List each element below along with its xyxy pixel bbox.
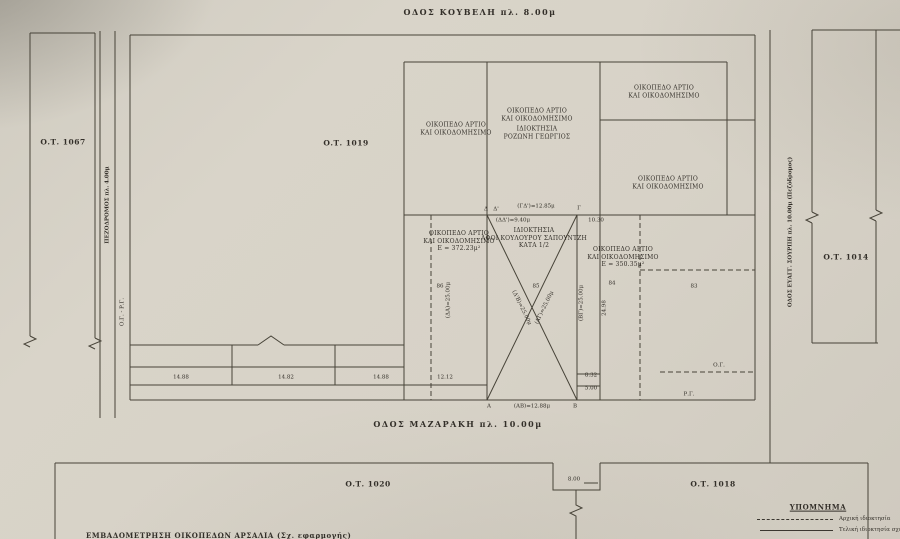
- parcel-number-83: 83: [691, 284, 698, 291]
- point-beta: Β: [573, 404, 577, 411]
- drawing-title: ΕΜΒΑΔΟΜΕΤΡΗΣΗ ΟΙΚΟΠΕΔΩΝ ΑΡΣΑΛΙΑ (Σχ. εφα…: [86, 532, 351, 539]
- block-label-ot1018: Ο.Τ. 1018: [690, 479, 735, 488]
- point-gamma: Γ: [577, 206, 581, 213]
- legend-item-label: Αρχική ιδιοκτησία: [839, 516, 891, 523]
- parcel-text-line: ΑΦΟΙ ΚΟΥΛΟΥΡΟΥ ΣΑΠΟΥΝΤΖΗ: [481, 234, 587, 242]
- legend-solid-line-sample: [760, 530, 833, 531]
- left-block-outline: [30, 33, 95, 338]
- dim-row-3: 14.88: [373, 375, 389, 382]
- parcel-text-line: ΚΑΙ ΟΙΚΟΔΟΜΗΣΙΜΟ: [628, 92, 699, 100]
- parcel-text-line: ΟΙΚΟΠΕΔΟ ΑΡΤΙΟ: [420, 122, 491, 130]
- block-label-ot1019: Ο.Τ. 1019: [323, 138, 368, 147]
- parcel-upper-mid-label: ΟΙΚΟΠΕΔΟ ΑΡΤΙΟ ΚΑΙ ΟΙΚΟΔΟΜΗΣΙΜΟ ΙΔΙΟΚΤΗΣ…: [501, 108, 572, 141]
- cadastral-plan-scan: ΟΔΟΣ ΚΟΥΒΕΛΗ πλ. 8.00μ ΟΔΟΣ ΜΑΖΑΡΑΚΗ πλ.…: [0, 0, 900, 539]
- dim-ab: (ΑΒ)=12.88μ: [514, 404, 550, 411]
- break-zigzag-icon: [24, 336, 101, 349]
- dim-1030: 10.30: [588, 218, 604, 225]
- street-label-mazaraki: ΟΔΟΣ ΜΑΖΑΡΑΚΗ πλ. 10.00μ: [373, 419, 542, 429]
- block-label-ot1014: Ο.Τ. 1014: [823, 252, 868, 261]
- point-delta-prime: Δ': [493, 207, 498, 214]
- dim-row-1: 14.88: [173, 375, 189, 382]
- street-label-sourpi: ΟΔΟΣ ΕΥΑΓΓ. ΣΟΥΡΠΗ πλ. 10.00μ (Πεζόδρομο…: [788, 157, 795, 307]
- dim-notch-800: 8.00: [568, 477, 580, 484]
- dim-gd: (ΓΔ')=12.85μ: [517, 204, 555, 211]
- point-alpha: Α: [487, 404, 491, 411]
- parcel-lower-mid-label: ΙΔΙΟΚΤΗΣΙΑ ΑΦΟΙ ΚΟΥΛΟΥΡΟΥ ΣΑΠΟΥΝΤΖΗ ΚΑΤΑ…: [481, 227, 587, 250]
- parcel-text-line: ΚΑΙ ΟΙΚΟΔΟΜΗΣΙΜΟ: [587, 253, 658, 261]
- parcel-mid-right-label: ΟΙΚΟΠΕΔΟ ΑΡΤΙΟ ΚΑΙ ΟΙΚΟΔΟΜΗΣΙΜΟ: [632, 176, 703, 191]
- line-mark-og-rg: Ο.Γ. - Ρ.Γ.: [120, 298, 127, 326]
- plan-linework: [0, 0, 900, 539]
- parcel-text-line: ΚΑΙ ΟΙΚΟΔΟΜΗΣΙΜΟ: [501, 115, 572, 123]
- parcel-number-85: 85: [533, 284, 540, 291]
- parcel-number-86: 86: [437, 284, 444, 291]
- block-label-ot1020: Ο.Τ. 1020: [345, 479, 390, 488]
- dim-row-4: 12.12: [437, 375, 453, 382]
- point-delta: Δ: [484, 207, 488, 214]
- parcel-number-84: 84: [609, 281, 616, 288]
- parcel-area-value: Ε = 350.35μ²: [587, 261, 658, 269]
- right-block-outline: [812, 30, 900, 343]
- bottom-blocks-line: [55, 463, 868, 539]
- parcel-upper-right-label: ΟΙΚΟΠΕΔΟ ΑΡΤΙΟ ΚΑΙ ΟΙΚΟΔΟΜΗΣΙΜΟ: [628, 85, 699, 100]
- parcel-text-line: ΙΔΙΟΚΤΗΣΙΑ: [501, 126, 572, 134]
- legend-item-label: Τελική ιδιοκτησία σχεδίου πόλεως: [839, 527, 900, 534]
- dim-2498: 24.98: [602, 300, 609, 316]
- block-label-ot1067: Ο.Τ. 1067: [40, 137, 85, 146]
- mark-rg: Ρ.Γ.: [683, 392, 694, 399]
- legend-title: ΥΠΟΜΝΗΜΑ: [790, 504, 846, 513]
- parcel-text-line: ΟΙΚΟΠΕΔΟ ΑΡΤΙΟ: [628, 85, 699, 93]
- parcel-text-line: ΚΑΤΑ 1/2: [481, 242, 587, 250]
- parcel-text-line: ΙΔΙΟΚΤΗΣΙΑ: [481, 227, 587, 235]
- parcel-text-line: ΟΙΚΟΠΕΔΟ ΑΡΤΙΟ: [501, 108, 572, 116]
- dim-dd: (ΔΔ')=9.40μ: [496, 218, 530, 225]
- parcel-upper-left-label: ΟΙΚΟΠΕΔΟ ΑΡΤΙΟ ΚΑΙ ΟΙΚΟΔΟΜΗΣΙΜΟ: [420, 122, 491, 137]
- street-label-pezodromos: ΠΕΖΟΔΡΟΜΟΣ πλ. 4.00μ: [105, 166, 112, 243]
- parcel-lower-right-label: ΟΙΚΟΠΕΔΟ ΑΡΤΙΟ ΚΑΙ ΟΙΚΟΔΟΜΗΣΙΜΟ Ε = 350.…: [587, 246, 658, 269]
- parcel-text-line: ΚΑΙ ΟΙΚΟΔΟΜΗΣΙΜΟ: [632, 183, 703, 191]
- dim-832: 8.32: [585, 373, 597, 380]
- parcel-text-line: ΟΙΚΟΠΕΔΟ ΑΡΤΙΟ: [632, 176, 703, 184]
- dim-500: 5.00: [585, 386, 597, 393]
- parcel-text-line: ΟΙΚΟΠΕΔΟ ΑΡΤΙΟ: [587, 246, 658, 254]
- mark-og: Ο.Γ.: [713, 363, 725, 370]
- break-zigzag-icon: [806, 210, 882, 223]
- dim-da-25: (ΔΑ)=25.00μ: [446, 282, 453, 318]
- dim-bg-25: (ΒΓ)=25.00μ: [579, 285, 586, 321]
- parcel-text-line: ΡΟΖΩΝΗ ΓΕΩΡΓΙΟΣ: [501, 133, 572, 141]
- parcel-text-line: ΚΑΙ ΟΙΚΟΔΟΜΗΣΙΜΟ: [420, 129, 491, 137]
- street-label-koubeli: ΟΔΟΣ ΚΟΥΒΕΛΗ πλ. 8.00μ: [403, 7, 556, 17]
- legend-dashed-line-sample: [757, 519, 833, 520]
- break-zigzag-icon: [570, 490, 582, 539]
- dim-row-2: 14.82: [278, 375, 294, 382]
